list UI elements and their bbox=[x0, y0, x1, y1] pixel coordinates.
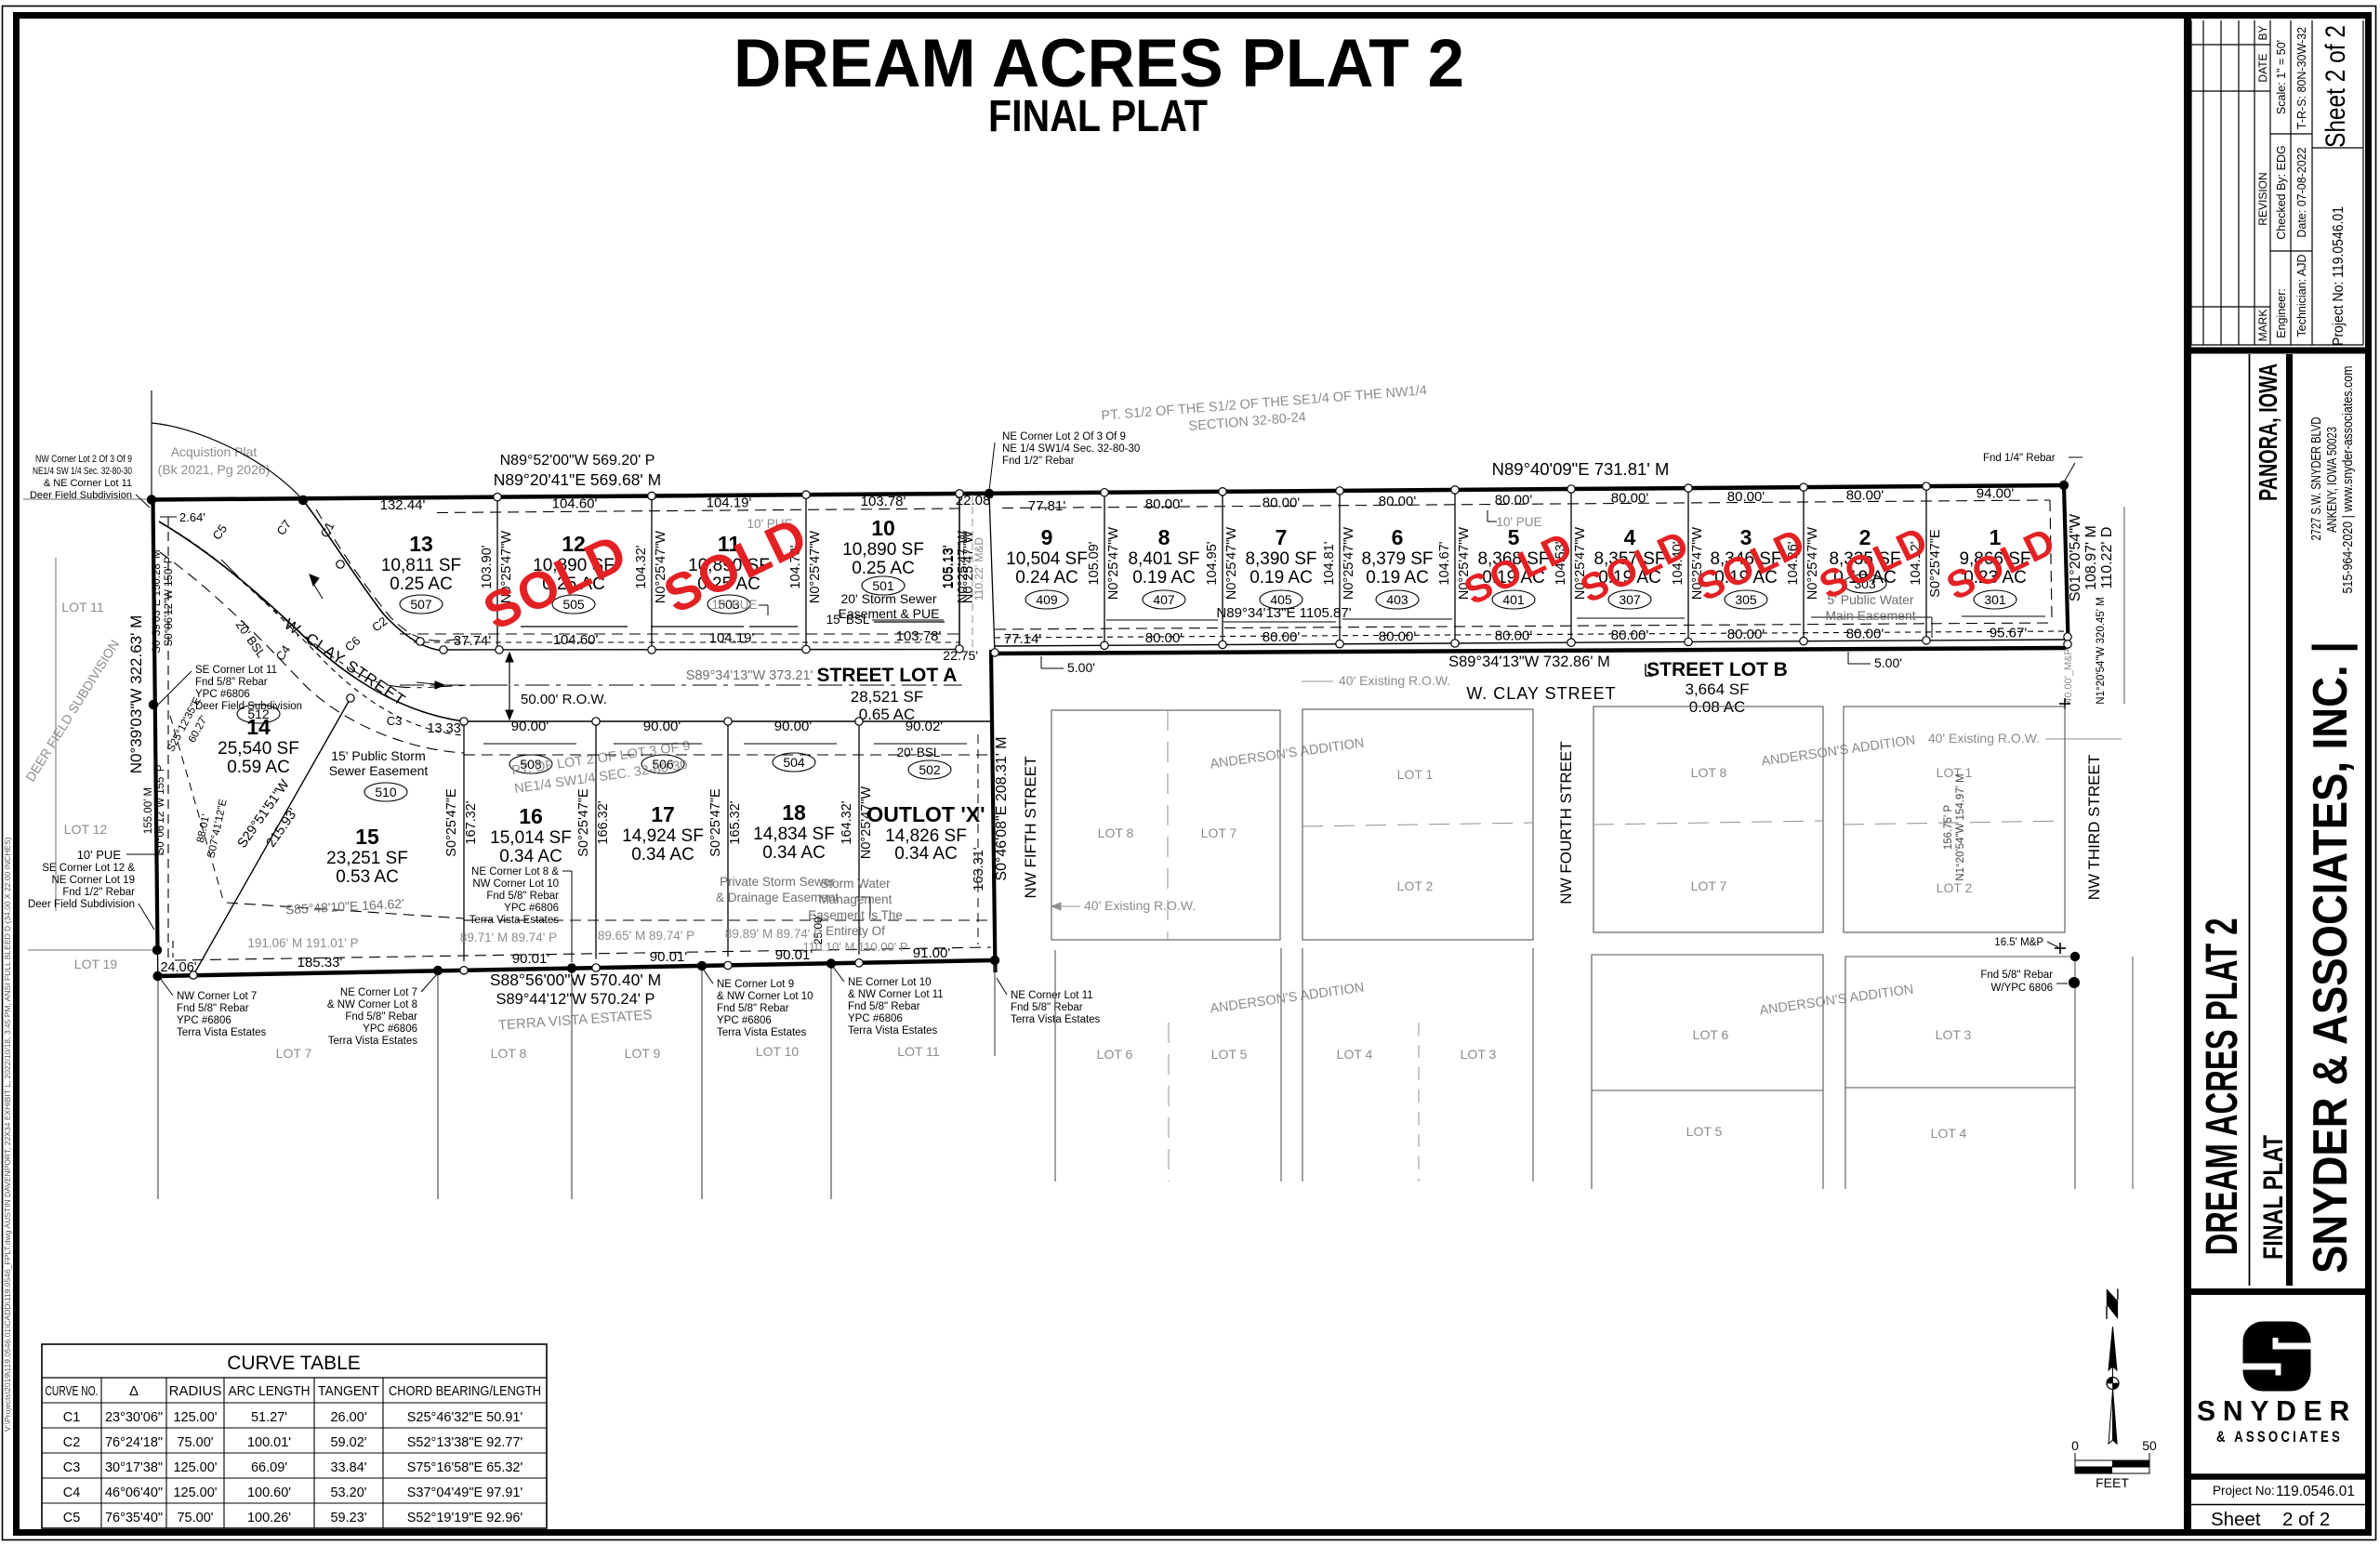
svg-text:Fnd 5/8" Rebar: Fnd 5/8" Rebar bbox=[717, 1003, 789, 1014]
svg-text:REVISION: REVISION bbox=[2256, 172, 2269, 225]
svg-text:NW Corner Lot 2 Of 3 Of 9: NW Corner Lot 2 Of 3 Of 9 bbox=[35, 454, 132, 465]
svg-text:C3: C3 bbox=[63, 1460, 81, 1475]
svg-text:125.00': 125.00' bbox=[173, 1410, 217, 1425]
svg-text:125.00': 125.00' bbox=[173, 1460, 217, 1475]
svg-text:LOT 6: LOT 6 bbox=[1097, 1047, 1133, 1062]
svg-text:40.00'_M&P: 40.00'_M&P bbox=[2063, 648, 2074, 704]
svg-text:CURVE TABLE: CURVE TABLE bbox=[227, 1353, 361, 1374]
svg-text:80.00': 80.00' bbox=[1263, 495, 1301, 511]
svg-text:0.34 AC: 0.34 AC bbox=[499, 847, 562, 866]
svg-text:C4: C4 bbox=[63, 1486, 81, 1500]
svg-text:& NW Corner Lot 11: & NW Corner Lot 11 bbox=[848, 989, 944, 1000]
svg-text:DREAM ACRES PLAT 2: DREAM ACRES PLAT 2 bbox=[2198, 918, 2247, 1256]
svg-text:N0°25'47"W: N0°25'47"W bbox=[956, 531, 971, 604]
svg-text:NE Corner Lot 2 Of 3 Of 9: NE Corner Lot 2 Of 3 Of 9 bbox=[1002, 431, 1126, 442]
svg-text:Date: 07-08-2022: Date: 07-08-2022 bbox=[2295, 147, 2308, 237]
svg-text:Fnd 1/4" Rebar: Fnd 1/4" Rebar bbox=[1983, 453, 2056, 464]
svg-text:104.81': 104.81' bbox=[1322, 541, 1337, 585]
svg-text:Terra Vista Estates: Terra Vista Estates bbox=[469, 915, 560, 926]
svg-text:104.60': 104.60' bbox=[553, 632, 599, 648]
svg-text:NW Corner Lot 7: NW Corner Lot 7 bbox=[177, 991, 257, 1002]
svg-text:105.09': 105.09' bbox=[1087, 541, 1102, 585]
svg-text:51.27': 51.27' bbox=[251, 1410, 287, 1425]
svg-text:37.74': 37.74' bbox=[454, 633, 492, 649]
svg-text:T-R-S: 80N-30W-32: T-R-S: 80N-30W-32 bbox=[2295, 27, 2308, 129]
svg-text:Fnd 1/2" Rebar: Fnd 1/2" Rebar bbox=[62, 887, 135, 898]
svg-text:Fnd 5/8" Rebar: Fnd 5/8" Rebar bbox=[1980, 970, 2053, 981]
svg-text:C3: C3 bbox=[387, 714, 403, 728]
svg-text:13: 13 bbox=[409, 532, 433, 556]
svg-text:0.34 AC: 0.34 AC bbox=[894, 844, 958, 864]
svg-text:0.19 AC: 0.19 AC bbox=[1366, 568, 1429, 588]
svg-text:LOT 19: LOT 19 bbox=[74, 957, 118, 971]
svg-text:59.02': 59.02' bbox=[330, 1435, 366, 1450]
svg-text:167.32': 167.32' bbox=[464, 800, 479, 844]
svg-text:23,251 SF: 23,251 SF bbox=[326, 849, 408, 868]
svg-text:N0°25'47"W: N0°25'47"W bbox=[859, 786, 874, 860]
svg-text:Management: Management bbox=[819, 892, 892, 906]
svg-text:10,890 SF: 10,890 SF bbox=[842, 540, 924, 560]
svg-text:15' Public Storm: 15' Public Storm bbox=[331, 748, 426, 763]
svg-text:SNYDER & ASSOCIATES, INC. |: SNYDER & ASSOCIATES, INC. | bbox=[2304, 641, 2358, 1274]
svg-text:0.19 AC: 0.19 AC bbox=[1249, 568, 1313, 588]
svg-text:103.78': 103.78' bbox=[896, 628, 942, 644]
svg-text:76°24'18": 76°24'18" bbox=[105, 1435, 163, 1450]
svg-text:S25°46'32"E 50.91': S25°46'32"E 50.91' bbox=[407, 1410, 523, 1425]
svg-text:80.00': 80.00' bbox=[1611, 491, 1649, 507]
svg-text:28,521 SF: 28,521 SF bbox=[851, 688, 923, 706]
svg-text:Fnd 5/8" Rebar: Fnd 5/8" Rebar bbox=[177, 1003, 249, 1014]
svg-text:9: 9 bbox=[1041, 525, 1053, 549]
svg-text:18: 18 bbox=[782, 800, 806, 825]
svg-text:2.64': 2.64' bbox=[179, 510, 205, 524]
svg-text:95.67': 95.67' bbox=[1990, 625, 2028, 640]
svg-text:ANKENY, IOWA 50023: ANKENY, IOWA 50023 bbox=[2325, 427, 2340, 533]
svg-text:ARC LENGTH: ARC LENGTH bbox=[229, 1383, 311, 1399]
svg-text:156.75' P: 156.75' P bbox=[1943, 805, 1954, 851]
svg-text:LOT 9: LOT 9 bbox=[625, 1046, 661, 1061]
svg-text:409: 409 bbox=[1036, 592, 1058, 607]
svg-text:FINAL PLAT: FINAL PLAT bbox=[2258, 1135, 2289, 1260]
svg-text:S0°25'47"E: S0°25'47"E bbox=[708, 788, 723, 857]
svg-text:8,379 SF: 8,379 SF bbox=[1361, 549, 1433, 569]
svg-text:N0°25'47"W: N0°25'47"W bbox=[1805, 527, 1820, 601]
svg-text:5.00': 5.00' bbox=[1067, 660, 1095, 675]
svg-text:STREET LOT A: STREET LOT A bbox=[817, 665, 958, 686]
svg-text:403: 403 bbox=[1386, 592, 1408, 607]
svg-text:Fnd 1/2" Rebar: Fnd 1/2" Rebar bbox=[1002, 456, 1075, 467]
svg-text:0.19 AC: 0.19 AC bbox=[1132, 568, 1196, 588]
svg-text:15,014 SF: 15,014 SF bbox=[490, 828, 572, 848]
svg-text:NE Corner Lot 11: NE Corner Lot 11 bbox=[1011, 990, 1093, 1001]
svg-text:OUTLOT 'X': OUTLOT 'X' bbox=[866, 802, 985, 826]
svg-text:0.25 AC: 0.25 AC bbox=[390, 574, 453, 594]
svg-text:NW THIRD STREET: NW THIRD STREET bbox=[2085, 755, 2103, 900]
svg-text:46°06'40": 46°06'40" bbox=[105, 1486, 163, 1500]
svg-text:C5: C5 bbox=[63, 1511, 81, 1525]
svg-text:512: 512 bbox=[247, 706, 270, 721]
svg-text:105.13': 105.13' bbox=[941, 545, 956, 588]
svg-text:S89°44'12"W 570.24' P: S89°44'12"W 570.24' P bbox=[496, 991, 654, 1008]
svg-text:16: 16 bbox=[519, 804, 543, 828]
svg-text:NE Corner Lot 7: NE Corner Lot 7 bbox=[340, 987, 417, 998]
svg-text:100.26': 100.26' bbox=[247, 1511, 291, 1525]
svg-text:90.01': 90.01' bbox=[512, 951, 550, 967]
svg-text:89.71' M 89.74' P: 89.71' M 89.74' P bbox=[460, 931, 557, 944]
svg-text:FINAL PLAT: FINAL PLAT bbox=[988, 92, 1208, 141]
svg-text:N89°40'09"E 731.81' M: N89°40'09"E 731.81' M bbox=[1492, 459, 1670, 479]
svg-text:NE Corner Lot 8 &: NE Corner Lot 8 & bbox=[471, 866, 559, 878]
svg-text:S0°25'47"E: S0°25'47"E bbox=[576, 788, 591, 857]
svg-text:104.67': 104.67' bbox=[1437, 541, 1452, 585]
svg-text:0.34 AC: 0.34 AC bbox=[631, 845, 694, 865]
svg-text:10' PUE: 10' PUE bbox=[1496, 515, 1541, 529]
svg-text:Sheet 2 of 2: Sheet 2 of 2 bbox=[2320, 25, 2351, 148]
svg-text:NE1/4 SW 1/4 Sec. 32-80-30: NE1/4 SW 1/4 Sec. 32-80-30 bbox=[33, 466, 132, 477]
svg-text:Fnd 5/8" Rebar: Fnd 5/8" Rebar bbox=[195, 677, 268, 688]
svg-text:66.09': 66.09' bbox=[251, 1460, 287, 1475]
svg-text:SE Corner Lot 12 &: SE Corner Lot 12 & bbox=[42, 863, 135, 874]
svg-text:16.5' M&P: 16.5' M&P bbox=[1994, 937, 2043, 948]
svg-text:77.81': 77.81' bbox=[1028, 498, 1066, 514]
svg-text:507: 507 bbox=[410, 597, 432, 612]
svg-text:Fnd 5/8" Rebar: Fnd 5/8" Rebar bbox=[486, 891, 559, 902]
svg-text:C1: C1 bbox=[63, 1410, 81, 1425]
svg-text:0: 0 bbox=[2071, 1438, 2079, 1453]
svg-text:MARK: MARK bbox=[2256, 310, 2269, 342]
svg-text:LOT 8: LOT 8 bbox=[491, 1046, 527, 1061]
svg-text:LOT 11: LOT 11 bbox=[61, 600, 104, 614]
svg-text:104.19': 104.19' bbox=[709, 630, 755, 646]
svg-text:0.24 AC: 0.24 AC bbox=[1015, 568, 1078, 588]
svg-text:50: 50 bbox=[2142, 1438, 2157, 1453]
svg-text:S89°34'13"W 732.86' M: S89°34'13"W 732.86' M bbox=[1448, 654, 1610, 670]
svg-text:33.84': 33.84' bbox=[330, 1460, 366, 1475]
svg-text:S01°20'54"W: S01°20'54"W bbox=[2068, 513, 2083, 601]
svg-text:14,924 SF: 14,924 SF bbox=[622, 826, 704, 846]
svg-text:502: 502 bbox=[919, 762, 941, 777]
svg-text:75.00': 75.00' bbox=[177, 1435, 213, 1450]
svg-text:N0°25'47"W: N0°25'47"W bbox=[1224, 527, 1239, 601]
svg-text:13.33': 13.33' bbox=[427, 721, 463, 736]
svg-text:185.33': 185.33' bbox=[297, 955, 343, 971]
svg-text:CHORD BEARING/LENGTH: CHORD BEARING/LENGTH bbox=[389, 1383, 541, 1399]
svg-text:RADIUS: RADIUS bbox=[169, 1383, 222, 1399]
svg-text:SNYDER: SNYDER bbox=[2197, 1394, 2357, 1427]
svg-text:25,540 SF: 25,540 SF bbox=[218, 739, 299, 759]
svg-text:W/YPC 6806: W/YPC 6806 bbox=[1991, 983, 2053, 994]
svg-text:LOT 4: LOT 4 bbox=[1337, 1047, 1373, 1062]
svg-text:Acquistion Plat: Acquistion Plat bbox=[171, 444, 258, 459]
svg-text:YPC #6806: YPC #6806 bbox=[848, 1013, 903, 1024]
svg-text:119.0546.01: 119.0546.01 bbox=[2276, 1484, 2355, 1499]
svg-text:Easement & PUE: Easement & PUE bbox=[839, 606, 940, 621]
svg-text:163.31': 163.31' bbox=[972, 847, 986, 891]
svg-text:N0°25'47"W: N0°25'47"W bbox=[808, 531, 823, 604]
svg-text:DATE: DATE bbox=[2256, 53, 2269, 82]
svg-text:Terra Vista Estates: Terra Vista Estates bbox=[717, 1027, 807, 1038]
svg-text:LOT 1: LOT 1 bbox=[1397, 767, 1434, 782]
svg-text:N89°34'13"E 1105.87': N89°34'13"E 1105.87' bbox=[1216, 605, 1351, 621]
svg-text:510: 510 bbox=[375, 785, 397, 799]
svg-text:80.00': 80.00' bbox=[1727, 627, 1765, 642]
svg-text:BY: BY bbox=[2256, 25, 2269, 40]
svg-text:17: 17 bbox=[651, 802, 675, 826]
svg-text:Terra Vista Estates: Terra Vista Estates bbox=[848, 1025, 938, 1037]
svg-text:90.01': 90.01' bbox=[650, 949, 688, 965]
svg-text:C2: C2 bbox=[63, 1435, 81, 1450]
svg-text:191.06' M 191.01' P: 191.06' M 191.01' P bbox=[247, 936, 358, 950]
svg-text:26.00': 26.00' bbox=[330, 1410, 366, 1425]
svg-text:Deer Field Subdivision: Deer Field Subdivision bbox=[30, 490, 132, 501]
svg-text:S52°13'38"E 92.77': S52°13'38"E 92.77' bbox=[407, 1435, 523, 1450]
svg-text:89.65' M 89.74' P: 89.65' M 89.74' P bbox=[598, 929, 694, 943]
svg-text:CURVE NO.: CURVE NO. bbox=[46, 1383, 99, 1399]
svg-text:Sheet: Sheet bbox=[2211, 1509, 2261, 1530]
svg-text:104.95': 104.95' bbox=[1205, 541, 1220, 585]
svg-text:& NW Corner Lot 10: & NW Corner Lot 10 bbox=[717, 991, 813, 1002]
svg-text:59.23': 59.23' bbox=[330, 1511, 366, 1525]
svg-text:Checked By: EDG: Checked By: EDG bbox=[2275, 145, 2288, 239]
svg-text:LOT 5: LOT 5 bbox=[1211, 1047, 1248, 1062]
svg-text:NE 1/4 SW1/4 Sec. 32-80-30: NE 1/4 SW1/4 Sec. 32-80-30 bbox=[1002, 443, 1140, 455]
svg-text:TANGENT: TANGENT bbox=[318, 1383, 379, 1399]
svg-text:Deer Field Subdivision: Deer Field Subdivision bbox=[28, 899, 135, 910]
svg-text:LOT 2: LOT 2 bbox=[1397, 878, 1434, 893]
svg-text:LOT 3: LOT 3 bbox=[1461, 1047, 1497, 1062]
svg-text:20' BSL: 20' BSL bbox=[897, 746, 941, 759]
svg-text:80.00': 80.00' bbox=[1145, 496, 1183, 512]
svg-text:2 of 2: 2 of 2 bbox=[2282, 1509, 2330, 1530]
svg-text:165.32': 165.32' bbox=[728, 800, 743, 844]
svg-text:30°17'38": 30°17'38" bbox=[105, 1460, 163, 1475]
svg-text:108.97' M: 108.97' M bbox=[2083, 525, 2099, 590]
svg-text:164.32': 164.32' bbox=[840, 800, 854, 844]
svg-text:LOT 7: LOT 7 bbox=[1201, 825, 1237, 840]
svg-text:40' Existing R.O.W.: 40' Existing R.O.W. bbox=[1339, 673, 1450, 688]
svg-text:S0°39'03"E 150.28' M: S0°39'03"E 150.28' M bbox=[152, 549, 163, 654]
svg-text:77.14': 77.14' bbox=[1004, 631, 1042, 647]
svg-text:90.00': 90.00' bbox=[511, 719, 549, 734]
svg-text:100.60': 100.60' bbox=[247, 1486, 291, 1500]
svg-text:103.78': 103.78' bbox=[861, 494, 906, 509]
svg-text:N89°52'00"W 569.20' P: N89°52'00"W 569.20' P bbox=[500, 453, 655, 469]
svg-text:100.01': 100.01' bbox=[247, 1435, 291, 1450]
svg-text:132.44': 132.44' bbox=[380, 497, 426, 513]
svg-text:S0°06'12"W 150' P: S0°06'12"W 150' P bbox=[164, 556, 175, 646]
svg-text:LOT 5: LOT 5 bbox=[1686, 1124, 1723, 1139]
svg-text:N0°25'47"W: N0°25'47"W bbox=[1106, 527, 1121, 601]
svg-text:80.00': 80.00' bbox=[1379, 494, 1417, 509]
svg-text:10' PUE: 10' PUE bbox=[77, 848, 122, 862]
svg-text:80.00': 80.00' bbox=[1611, 627, 1649, 643]
svg-text:LOT 4: LOT 4 bbox=[1931, 1126, 1967, 1141]
svg-text:10,504 SF: 10,504 SF bbox=[1006, 549, 1088, 569]
svg-text:Entirety Of: Entirety Of bbox=[826, 924, 885, 938]
svg-text:Engineer:: Engineer: bbox=[2275, 288, 2288, 338]
svg-text:LOT 2: LOT 2 bbox=[1937, 880, 1973, 895]
svg-text:FEET: FEET bbox=[2096, 1475, 2129, 1490]
svg-text:50.00' R.O.W.: 50.00' R.O.W. bbox=[521, 692, 607, 707]
svg-text:Main Easement: Main Easement bbox=[1825, 608, 1915, 623]
svg-text:15: 15 bbox=[355, 825, 379, 849]
svg-text:S88°56'00"W 570.40' M: S88°56'00"W 570.40' M bbox=[490, 971, 661, 989]
svg-text:N0°25'47"W: N0°25'47"W bbox=[1342, 527, 1356, 601]
svg-text:STREET LOT B: STREET LOT B bbox=[1646, 659, 1788, 680]
svg-text:LOT 3: LOT 3 bbox=[1936, 1027, 1972, 1042]
svg-text:104.19': 104.19' bbox=[707, 495, 752, 511]
svg-text:301: 301 bbox=[1984, 592, 2006, 607]
svg-text:80.00': 80.00' bbox=[1495, 492, 1533, 508]
svg-text:3,664 SF: 3,664 SF bbox=[1686, 680, 1750, 698]
svg-text:0.25 AC: 0.25 AC bbox=[852, 559, 915, 578]
svg-text:LOT 10: LOT 10 bbox=[756, 1044, 800, 1059]
svg-text:53.20': 53.20' bbox=[330, 1486, 366, 1500]
svg-text:NE Corner Lot 10: NE Corner Lot 10 bbox=[848, 977, 932, 988]
svg-text:5.00': 5.00' bbox=[1874, 655, 1902, 670]
svg-text:40' Existing R.O.W.: 40' Existing R.O.W. bbox=[1928, 731, 2040, 746]
svg-text:80.00': 80.00' bbox=[1846, 626, 1884, 641]
svg-text:S89°34'13"W 373.21': S89°34'13"W 373.21' bbox=[686, 668, 813, 683]
svg-text:10,811 SF: 10,811 SF bbox=[381, 556, 461, 575]
svg-text:515-964-2020 | www.snyder-asso: 515-964-2020 | www.snyder-associates.com bbox=[2341, 366, 2356, 594]
svg-text:YPC #6806: YPC #6806 bbox=[504, 903, 559, 914]
svg-text:8,401 SF: 8,401 SF bbox=[1128, 549, 1199, 569]
svg-text:LOT 6: LOT 6 bbox=[1693, 1027, 1729, 1042]
svg-text:LOT 8: LOT 8 bbox=[1691, 765, 1727, 780]
svg-text:8: 8 bbox=[1158, 525, 1170, 549]
svg-text:(Bk 2021, Pg 2026): (Bk 2021, Pg 2026) bbox=[158, 462, 271, 477]
svg-text:80.00': 80.00' bbox=[1495, 628, 1533, 644]
svg-text:NW FIFTH STREET: NW FIFTH STREET bbox=[1022, 757, 1039, 899]
svg-text:NW FOURTH STREET: NW FOURTH STREET bbox=[1557, 741, 1575, 904]
svg-text:Fnd 5/8" Rebar: Fnd 5/8" Rebar bbox=[848, 1001, 920, 1012]
svg-text:Sewer Easement: Sewer Easement bbox=[329, 763, 429, 778]
svg-text:NE Corner Lot 9: NE Corner Lot 9 bbox=[717, 979, 794, 990]
svg-text:N1°20'54"W 320.45' M: N1°20'54"W 320.45' M bbox=[2096, 597, 2107, 704]
svg-text:YPC #6806: YPC #6806 bbox=[717, 1015, 772, 1026]
svg-text:504: 504 bbox=[783, 755, 805, 770]
svg-text:Fnd 5/8" Rebar: Fnd 5/8" Rebar bbox=[1011, 1002, 1083, 1013]
svg-text:166.32': 166.32' bbox=[596, 800, 611, 844]
svg-text:23°30'06": 23°30'06" bbox=[105, 1410, 163, 1425]
svg-text:0.53 AC: 0.53 AC bbox=[336, 867, 399, 887]
svg-text:Terra Vista Estates: Terra Vista Estates bbox=[328, 1036, 418, 1047]
svg-text:V:\Projects\2019\119.0546.01\C: V:\Projects\2019\119.0546.01\CADD\119.05… bbox=[3, 837, 12, 1432]
svg-text:104.32': 104.32' bbox=[634, 545, 649, 588]
svg-text:Project No:: Project No: bbox=[2213, 1484, 2275, 1498]
svg-text:90.02': 90.02' bbox=[906, 719, 944, 734]
svg-text:80.00': 80.00' bbox=[1379, 628, 1417, 644]
svg-text:NE Corner Lot 19: NE Corner Lot 19 bbox=[52, 875, 136, 886]
svg-text:89.89' M 89.74' P: 89.89' M 89.74' P bbox=[725, 927, 822, 941]
svg-text:W. CLAY STREET: W. CLAY STREET bbox=[1466, 684, 1616, 703]
svg-text:2727 S.W. SNYDER BLVD: 2727 S.W. SNYDER BLVD bbox=[2309, 417, 2324, 541]
svg-text:90.00': 90.00' bbox=[774, 719, 813, 734]
svg-text:80.00': 80.00' bbox=[1846, 487, 1884, 503]
svg-text:Private Storm Sewer: Private Storm Sewer bbox=[720, 875, 835, 889]
svg-text:76°35'40": 76°35'40" bbox=[105, 1511, 163, 1525]
svg-text:Project No: 119.0546.01: Project No: 119.0546.01 bbox=[2331, 206, 2347, 346]
svg-text:75.00': 75.00' bbox=[177, 1511, 213, 1525]
svg-text:7: 7 bbox=[1276, 525, 1288, 549]
svg-text:8,390 SF: 8,390 SF bbox=[1245, 549, 1316, 569]
svg-text:& ASSOCIATES: & ASSOCIATES bbox=[2216, 1429, 2343, 1446]
svg-text:N0°39'03"W 322.63' M: N0°39'03"W 322.63' M bbox=[127, 615, 145, 774]
svg-text:S75°16'58"E 65.32': S75°16'58"E 65.32' bbox=[407, 1460, 523, 1475]
svg-text:Scale: 1" = 50': Scale: 1" = 50' bbox=[2275, 40, 2288, 114]
svg-text:YPC #6806: YPC #6806 bbox=[177, 1015, 231, 1026]
svg-text:LOT 7: LOT 7 bbox=[1691, 878, 1727, 893]
svg-text:LOT 8: LOT 8 bbox=[1098, 825, 1134, 840]
svg-text:S37°04'49"E 97.91': S37°04'49"E 97.91' bbox=[407, 1486, 523, 1500]
svg-text:104.60': 104.60' bbox=[552, 496, 598, 512]
svg-text:110.22' M&D: 110.22' M&D bbox=[972, 537, 985, 601]
svg-text:407: 407 bbox=[1153, 592, 1175, 607]
svg-text:Fnd 5/8" Rebar: Fnd 5/8" Rebar bbox=[345, 1011, 417, 1023]
svg-text:80.00': 80.00' bbox=[1145, 630, 1183, 646]
svg-text:0.34 AC: 0.34 AC bbox=[762, 843, 826, 863]
svg-text:YPC #6806: YPC #6806 bbox=[195, 689, 250, 700]
svg-text:94.00': 94.00' bbox=[1977, 485, 2015, 501]
svg-text:0.59 AC: 0.59 AC bbox=[227, 758, 290, 777]
svg-text:LOT 12: LOT 12 bbox=[64, 822, 108, 837]
svg-text:90.00': 90.00' bbox=[643, 719, 681, 734]
svg-text:Terra Vista Estates: Terra Vista Estates bbox=[177, 1027, 267, 1038]
svg-text:80.00': 80.00' bbox=[1727, 489, 1765, 505]
svg-text:40' Existing R.O.W.: 40' Existing R.O.W. bbox=[1084, 898, 1196, 913]
svg-text:N1°20'54"W 154.97' M: N1°20'54"W 154.97' M bbox=[1955, 773, 1966, 880]
svg-text:10: 10 bbox=[871, 516, 895, 540]
svg-text:6: 6 bbox=[1392, 525, 1404, 549]
svg-text:S52°19'19"E 92.96': S52°19'19"E 92.96' bbox=[407, 1511, 523, 1525]
svg-text:YPC #6806: YPC #6806 bbox=[363, 1023, 417, 1035]
svg-text:DREAM ACRES PLAT 2: DREAM ACRES PLAT 2 bbox=[734, 26, 1464, 101]
svg-text:14,826 SF: 14,826 SF bbox=[885, 826, 967, 846]
svg-text:& NE Corner Lot 11: & NE Corner Lot 11 bbox=[44, 478, 132, 489]
svg-text:Storm Water: Storm Water bbox=[820, 877, 891, 891]
svg-text:80.00': 80.00' bbox=[1263, 629, 1301, 645]
svg-text:& NW Corner Lot 8: & NW Corner Lot 8 bbox=[327, 999, 417, 1010]
svg-text:Δ: Δ bbox=[129, 1383, 139, 1399]
svg-text:S0°25'47"E: S0°25'47"E bbox=[1928, 529, 1943, 598]
svg-text:155.00' M: 155.00' M bbox=[143, 787, 154, 834]
svg-text:Technician: AJD: Technician: AJD bbox=[2295, 255, 2308, 337]
svg-text:125.00': 125.00' bbox=[173, 1486, 217, 1500]
svg-text:'S0°06'12"W 155' P: 'S0°06'12"W 155' P bbox=[155, 764, 166, 856]
svg-text:N89°20'41"E 569.68' M: N89°20'41"E 569.68' M bbox=[494, 470, 661, 489]
svg-text:LOT 7: LOT 7 bbox=[276, 1046, 312, 1061]
svg-text:NW Corner Lot 10: NW Corner Lot 10 bbox=[472, 878, 559, 890]
svg-text:LOT 11: LOT 11 bbox=[897, 1044, 940, 1059]
svg-text:20' Storm Sewer: 20' Storm Sewer bbox=[840, 591, 936, 606]
svg-text:90.01': 90.01' bbox=[775, 947, 813, 963]
svg-text:PANORA, IOWA: PANORA, IOWA bbox=[2254, 363, 2282, 501]
svg-text:S0°46'08"E 208.31' M: S0°46'08"E 208.31' M bbox=[994, 736, 1010, 880]
svg-text:S0°25'47"E: S0°25'47"E bbox=[444, 788, 459, 857]
svg-text:SE Corner Lot 11: SE Corner Lot 11 bbox=[195, 665, 277, 676]
svg-text:14,834 SF: 14,834 SF bbox=[753, 825, 835, 844]
svg-text:91.00': 91.00' bbox=[913, 945, 951, 961]
svg-text:110.22' D: 110.22' D bbox=[2099, 527, 2115, 589]
